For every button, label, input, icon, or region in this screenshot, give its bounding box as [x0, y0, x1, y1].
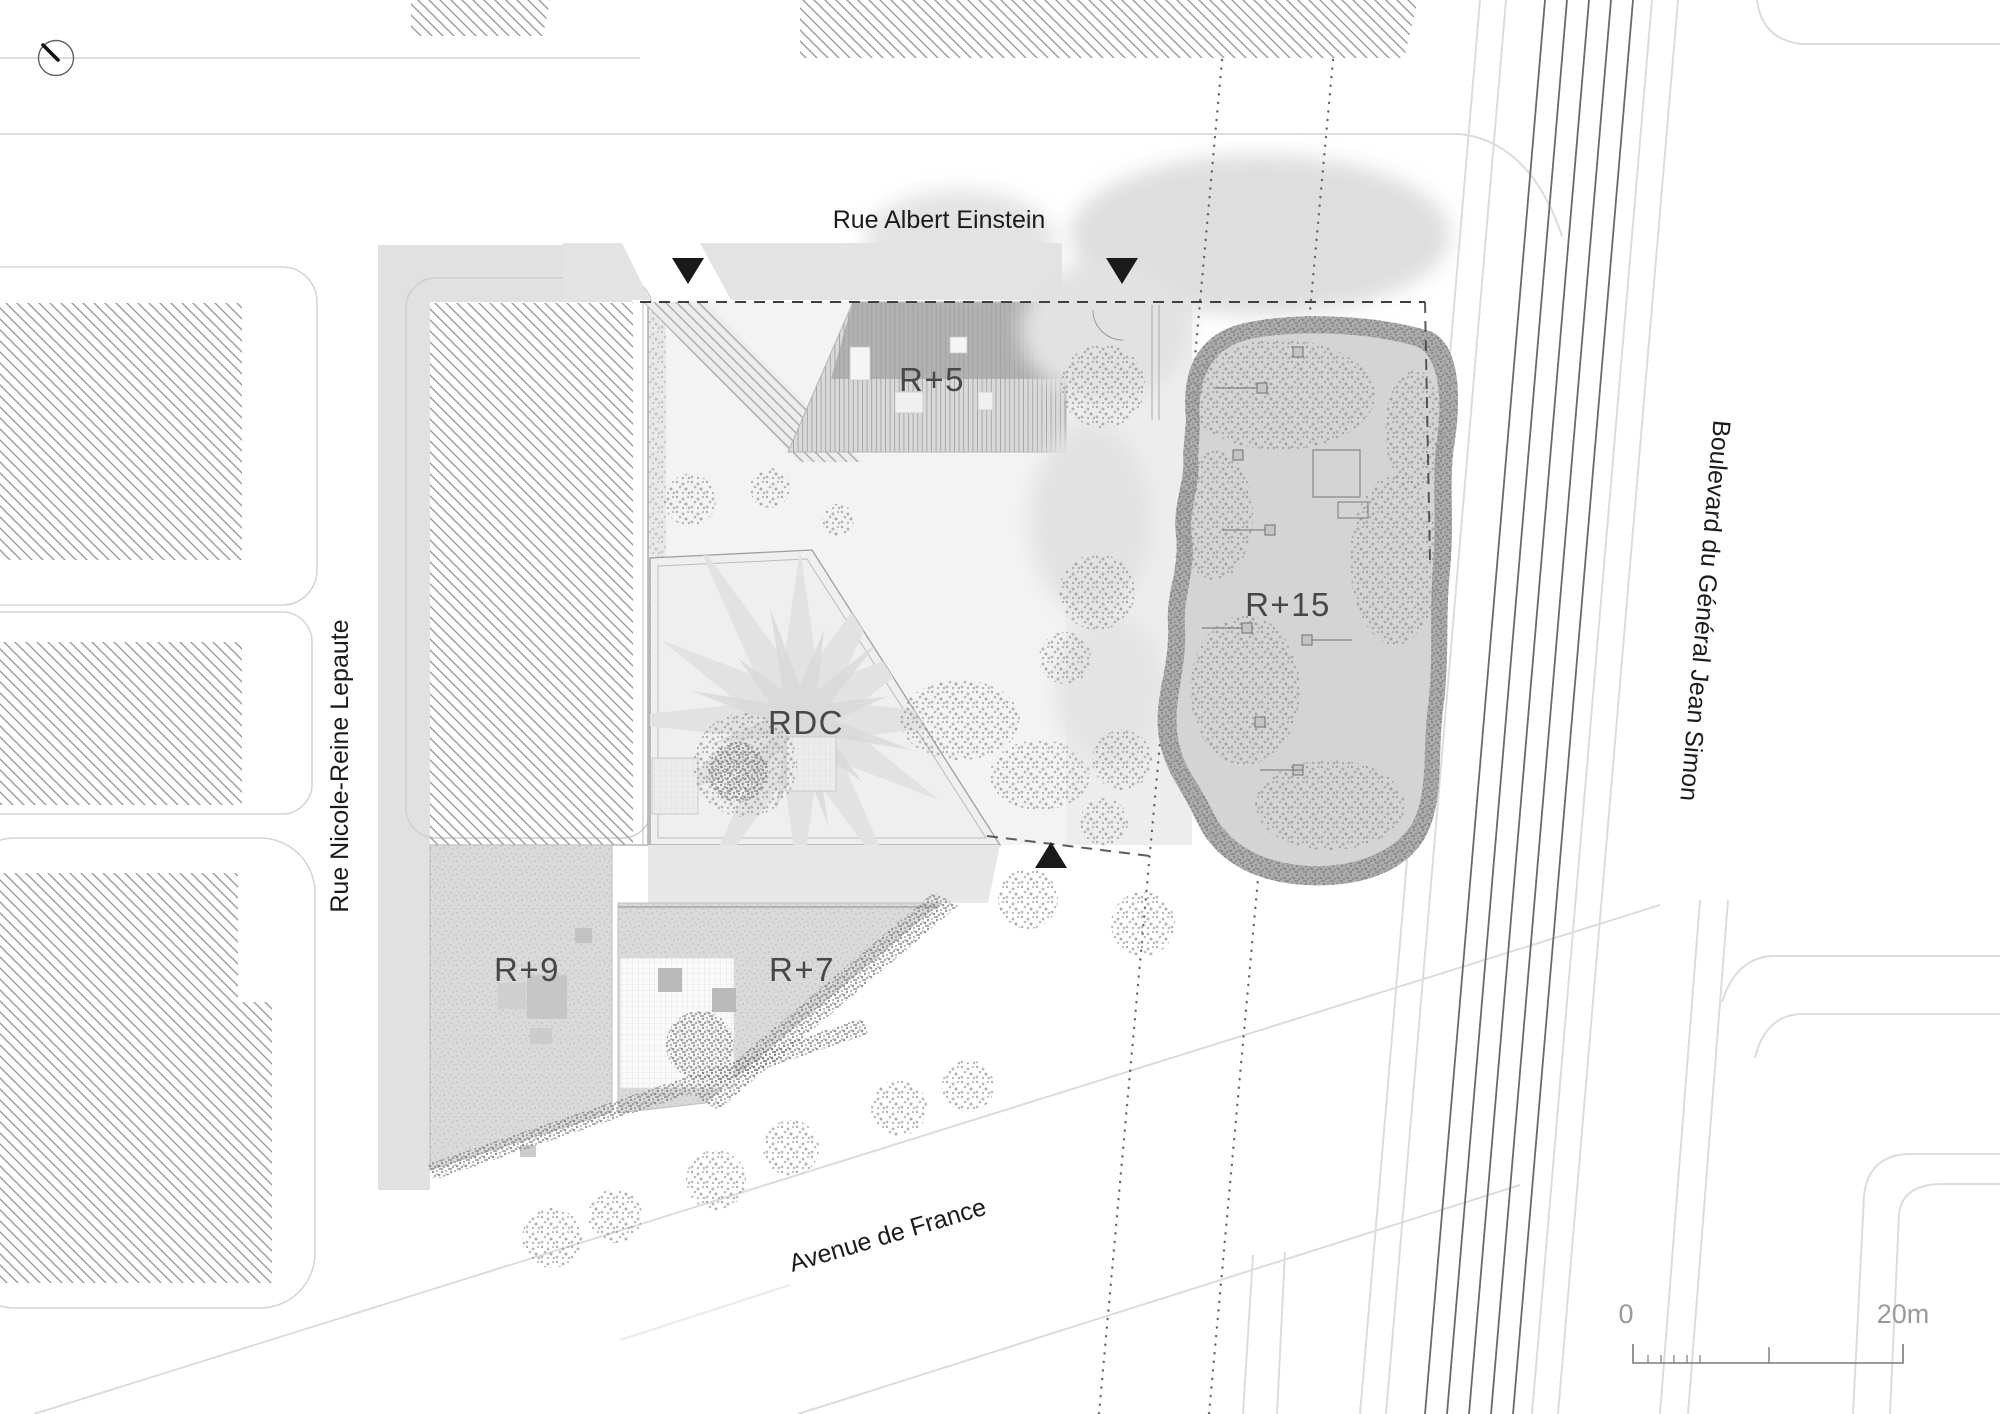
building-label-r7: R+7	[769, 951, 835, 988]
tree	[1092, 730, 1152, 790]
canopy-cloud	[865, 190, 1055, 290]
building-label-r9: R+9	[494, 951, 560, 988]
shrub	[822, 504, 854, 536]
equipment	[1265, 525, 1275, 535]
equipment	[1302, 635, 1312, 645]
site-plan-sheet: Rue Albert Einstein Rue Nicole-Reine Lep…	[0, 0, 2000, 1414]
rooftop-object	[850, 347, 870, 380]
r15-planting	[1350, 475, 1440, 645]
street-label-west: Rue Nicole-Reine Lepaute	[326, 619, 354, 912]
scale-start-label: 0	[1618, 1299, 1633, 1329]
street-corner-bottom-right-1	[1853, 1154, 2000, 1414]
tree	[1039, 632, 1091, 684]
parcel-hatch	[0, 642, 242, 805]
parcel-hatch	[0, 873, 272, 1283]
existing-building-hatch	[430, 303, 633, 845]
street-line-right-2	[1755, 1014, 2000, 1058]
building-label-rdc: RDC	[768, 704, 844, 741]
tree	[871, 1080, 927, 1136]
site-entrance-triangle-icon	[1035, 842, 1067, 868]
r15-planting	[1255, 760, 1405, 850]
building-label-r5: R+5	[899, 361, 965, 398]
hedge-patch	[900, 680, 1020, 760]
tree	[522, 1208, 582, 1268]
crosswalk-line	[1277, 1252, 1285, 1414]
street-label-north: Rue Albert Einstein	[833, 206, 1046, 234]
street-line-right-1	[1722, 956, 2000, 1002]
track-light	[1532, 0, 1652, 1414]
rooftop-object	[950, 337, 967, 353]
track-dark	[1513, 0, 1633, 1414]
rooftop-object	[978, 392, 993, 410]
tree	[1061, 344, 1145, 428]
avenue-lane-line	[620, 1285, 790, 1340]
tree	[686, 1150, 746, 1210]
r15-planting	[1385, 370, 1445, 490]
rooftop-object	[575, 928, 592, 943]
equipment	[1233, 450, 1243, 460]
rooftop-object	[658, 968, 682, 992]
street-label-south: Avenue de France	[786, 1193, 989, 1278]
hedge-patch	[990, 740, 1090, 810]
equipment	[1255, 717, 1265, 727]
crosswalk-line	[1243, 1255, 1253, 1414]
site-entrance-triangle-icon	[672, 258, 704, 284]
shrub	[664, 474, 716, 526]
tree	[588, 1189, 642, 1243]
street-corner	[1460, 134, 1562, 236]
south-wing-roof	[648, 845, 1000, 903]
rooftop-object	[530, 1028, 552, 1044]
equipment	[1293, 347, 1303, 357]
r15-planting	[1190, 615, 1300, 765]
building-label-r15: R+15	[1245, 586, 1331, 623]
planter-grid	[652, 758, 698, 814]
tree	[1059, 554, 1135, 630]
tree	[1080, 798, 1128, 846]
parcel-hatch-top-band	[800, 0, 1418, 58]
tree	[1111, 892, 1175, 956]
parcel-hatch	[0, 303, 242, 560]
equipment	[1242, 623, 1252, 633]
parcel-hatch-top-small	[411, 0, 550, 36]
canopy	[563, 243, 650, 300]
r15-planting	[1177, 450, 1253, 580]
tree	[942, 1060, 994, 1112]
street-label-east: Boulevard du Général Jean Simon	[1674, 419, 1735, 802]
equipment	[1257, 383, 1267, 393]
rooftop-object	[712, 988, 736, 1012]
tree	[763, 1120, 819, 1176]
scale-end-label: 20m	[1877, 1299, 1930, 1329]
tree	[998, 869, 1058, 929]
r15-planting	[1185, 340, 1375, 450]
track-light	[1558, 0, 1678, 1414]
street-corner-top-right	[1757, 0, 2000, 44]
shrub	[750, 468, 790, 508]
plaza-tree-core	[708, 742, 768, 802]
